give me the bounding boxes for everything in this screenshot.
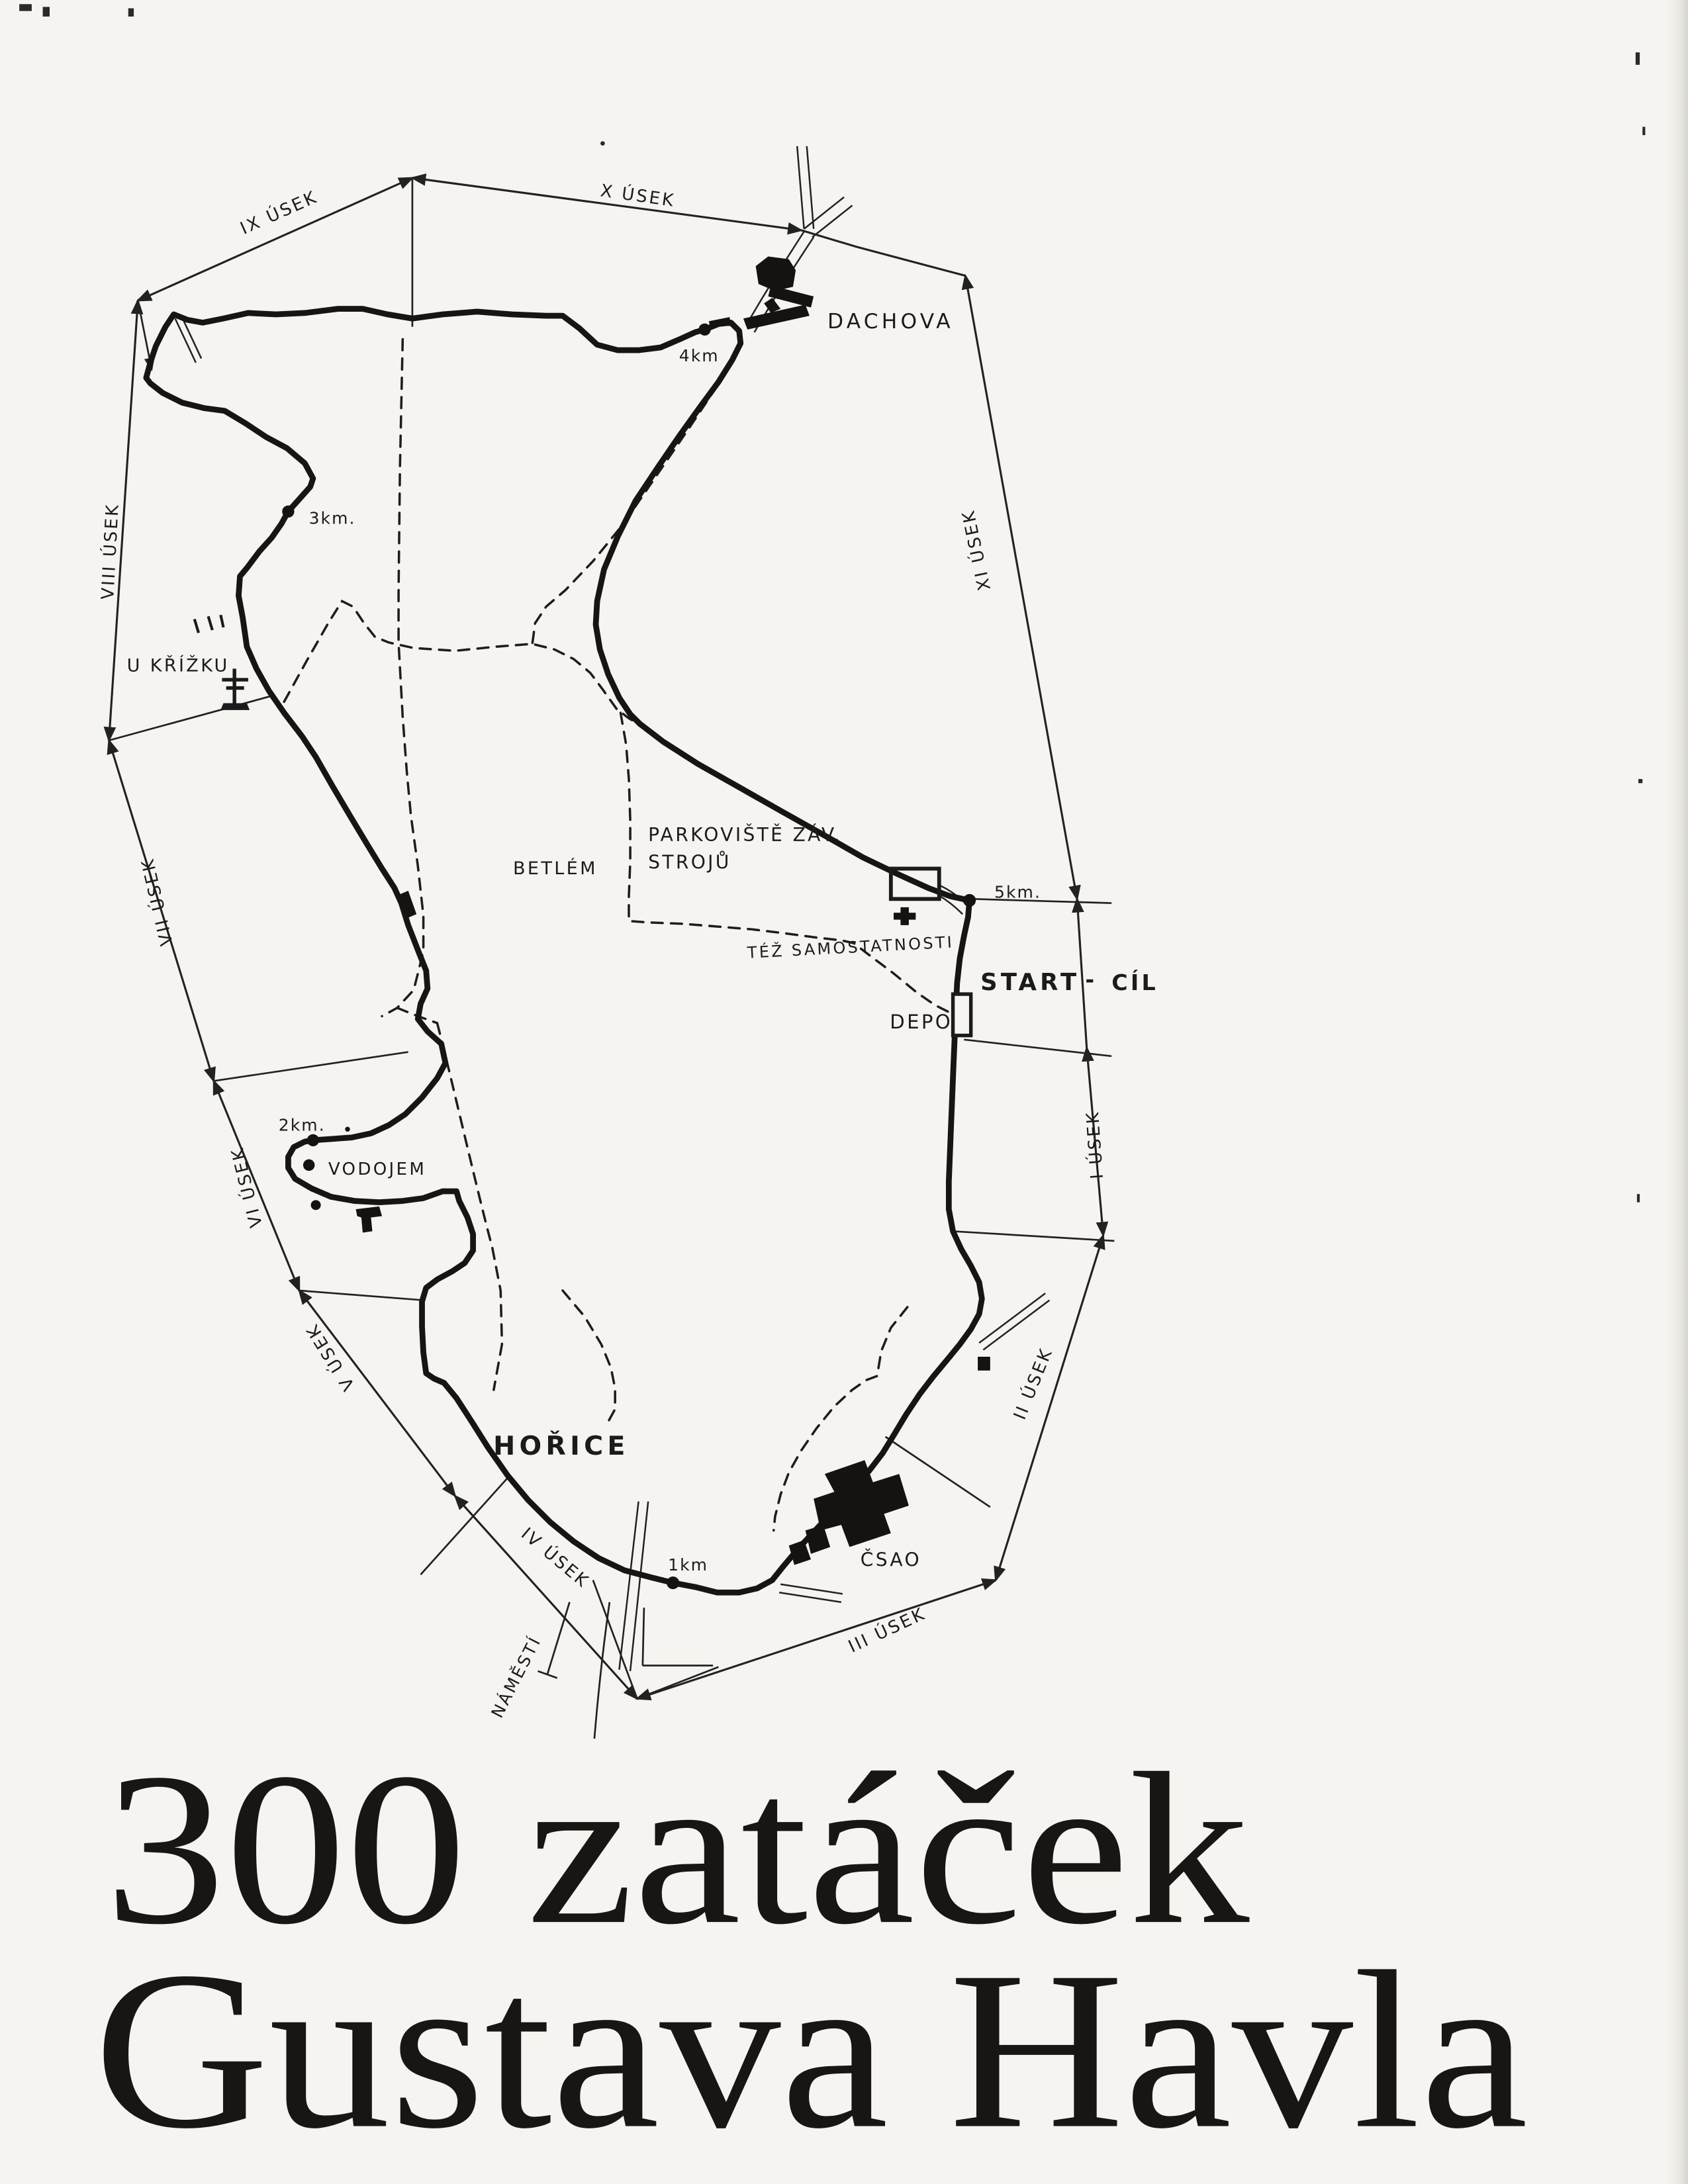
cil-label: CÍL xyxy=(1111,969,1158,995)
dot-3km xyxy=(282,506,294,518)
km-label-1: 1km xyxy=(668,1555,708,1574)
dot-4km xyxy=(698,324,710,336)
place-label-depo: DEPO xyxy=(890,1011,953,1033)
dot-5km xyxy=(963,894,976,907)
start-cil-separator: - xyxy=(1085,967,1096,993)
dot-2km xyxy=(307,1134,319,1146)
km-label-3: 3km. xyxy=(309,509,356,528)
place-label-horice: HOŘICE xyxy=(493,1430,630,1461)
place-label-u-krizku: U KŘÍŽKU xyxy=(127,655,230,676)
km-label-4: 4km xyxy=(679,346,720,365)
scanner-edge-shadow xyxy=(1664,0,1688,2184)
km-label-2: 2km. xyxy=(279,1115,326,1134)
place-label-betlem: BETLÉM xyxy=(513,858,598,879)
building-small-square xyxy=(978,1357,990,1371)
dot-extra xyxy=(311,1200,321,1210)
place-label-vodojem: VODOJEM xyxy=(328,1160,426,1179)
place-label-dachova: DACHOVA xyxy=(827,310,954,334)
depo-rect xyxy=(953,994,971,1036)
place-label-parkoviste-1: PARKOVIŠTĚ ZÁV. xyxy=(648,823,842,846)
dot-vodojem xyxy=(303,1160,314,1171)
place-label-csao: ČSAO xyxy=(861,1549,921,1571)
place-label-parkoviste-2: STROJŮ xyxy=(648,851,731,874)
dot-1km xyxy=(667,1576,679,1589)
dot-small xyxy=(345,1127,350,1132)
circuit-map-scan: IX ÚSEK X ÚSEK XI ÚSEK I ÚSEK II ÚSEK II… xyxy=(0,0,1688,2184)
start-label: START xyxy=(980,969,1080,996)
title-line-2: Gustava Havla xyxy=(94,1925,1528,2175)
km-label-5: 5km. xyxy=(994,882,1041,901)
